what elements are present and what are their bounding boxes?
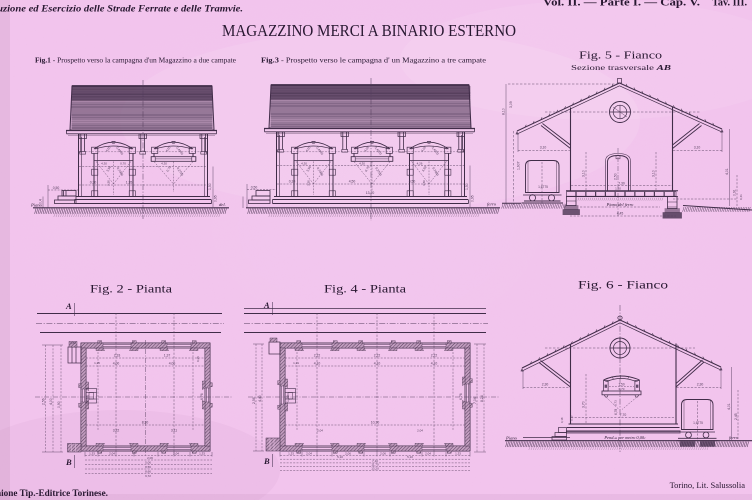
svg-text:0,95: 0,95 xyxy=(471,195,475,202)
svg-text:1,25: 1,25 xyxy=(94,361,100,365)
svg-text:6,76: 6,76 xyxy=(459,393,463,400)
svg-text:7,70: 7,70 xyxy=(620,413,627,417)
svg-text:4,98: 4,98 xyxy=(86,395,90,402)
svg-text:2,04: 2,04 xyxy=(425,452,431,456)
svg-text:4,10: 4,10 xyxy=(314,362,321,366)
svg-text:Fig.3 - Prospetto verso le cam: Fig.3 - Prospetto verso le campagna d' u… xyxy=(261,56,487,65)
svg-text:2,22: 2,22 xyxy=(314,354,321,358)
svg-text:3,10: 3,10 xyxy=(652,170,656,177)
svg-text:0,95: 0,95 xyxy=(214,195,218,202)
svg-text:B: B xyxy=(65,457,72,467)
svg-text:1,6775: 1,6775 xyxy=(538,185,548,189)
svg-text:Piano: Piano xyxy=(505,435,518,440)
svg-text:0,41: 0,41 xyxy=(739,194,743,200)
svg-text:3,70: 3,70 xyxy=(582,401,586,408)
svg-text:0,70: 0,70 xyxy=(619,387,625,391)
svg-text:1,37: 1,37 xyxy=(164,354,171,358)
svg-text:Fig.1 - Prospetto verso la cam: Fig.1 - Prospetto verso la campagna d'un… xyxy=(35,56,237,65)
svg-text:7,30: 7,30 xyxy=(618,182,625,186)
svg-text:4,01: 4,01 xyxy=(727,403,731,410)
svg-text:Piano del ferro: Piano del ferro xyxy=(606,202,634,207)
svg-text:5,10: 5,10 xyxy=(407,455,413,459)
svg-text:1,33: 1,33 xyxy=(288,452,294,456)
svg-text:Vol. II. — Parte I. — Cap. V.: Vol. II. — Parte I. — Cap. V. xyxy=(543,0,701,9)
svg-text:2,30: 2,30 xyxy=(542,383,549,387)
svg-text:3,10: 3,10 xyxy=(540,146,547,150)
svg-text:0,73: 0,73 xyxy=(614,400,618,406)
svg-text:0,30: 0,30 xyxy=(90,181,97,185)
svg-text:4,00: 4,00 xyxy=(169,362,176,366)
svg-text:1,50: 1,50 xyxy=(208,183,212,190)
svg-text:4,00: 4,00 xyxy=(113,362,120,366)
svg-text:0,25: 0,25 xyxy=(196,356,200,362)
svg-text:13,20: 13,20 xyxy=(371,466,379,470)
svg-text:0,18: 0,18 xyxy=(560,417,564,423)
svg-text:8,10: 8,10 xyxy=(502,108,506,115)
svg-text:1,6775: 1,6775 xyxy=(693,421,703,425)
svg-text:truzione ed Esercizio delle St: truzione ed Esercizio delle Strade Ferra… xyxy=(0,4,243,15)
svg-text:3,10: 3,10 xyxy=(694,146,701,150)
svg-text:2,04: 2,04 xyxy=(317,429,323,433)
svg-text:4,10: 4,10 xyxy=(431,362,438,366)
svg-text:13,20: 13,20 xyxy=(366,191,375,195)
svg-text:4,00: 4,00 xyxy=(49,398,53,405)
svg-text:del.: del. xyxy=(219,202,226,207)
svg-text:MAGAZZINO MERCI A BINARIO ESTE: MAGAZZINO MERCI A BINARIO ESTERNO xyxy=(222,21,516,40)
svg-text:1,50: 1,50 xyxy=(465,183,469,190)
svg-text:2,22: 2,22 xyxy=(374,354,381,358)
svg-text:0,15: 0,15 xyxy=(570,415,574,421)
svg-text:3,11: 3,11 xyxy=(171,429,177,433)
svg-text:0,50: 0,50 xyxy=(53,186,60,190)
svg-text:2,50: 2,50 xyxy=(614,173,618,180)
svg-text:4,50: 4,50 xyxy=(409,180,416,184)
svg-text:1,21: 1,21 xyxy=(293,361,299,365)
svg-text:0,80: 0,80 xyxy=(70,341,76,345)
svg-text:2,56: 2,56 xyxy=(252,397,256,404)
svg-text:4,30: 4,30 xyxy=(161,162,167,166)
svg-text:1,08: 1,08 xyxy=(286,395,290,402)
svg-text:10,30: 10,30 xyxy=(371,421,380,425)
svg-text:Fig. 2 - Pianta: Fig. 2 - Pianta xyxy=(90,284,172,296)
svg-text:ferro: ferro xyxy=(729,435,739,440)
svg-text:2,06: 2,06 xyxy=(147,456,153,460)
svg-text:2,06: 2,06 xyxy=(380,452,386,456)
svg-text:nione Tip.-Editrice Torinese.: nione Tip.-Editrice Torinese. xyxy=(0,488,108,498)
svg-text:1,50: 1,50 xyxy=(618,382,624,386)
svg-text:2,30: 2,30 xyxy=(697,383,704,387)
svg-text:Torino, Lit. Salussolia: Torino, Lit. Salussolia xyxy=(670,480,746,490)
svg-text:1,20: 1,20 xyxy=(615,187,621,191)
svg-text:4,26: 4,26 xyxy=(417,162,423,166)
svg-text:3,10: 3,10 xyxy=(582,170,586,177)
svg-text:B: B xyxy=(263,456,270,466)
svg-text:3,22: 3,22 xyxy=(113,429,120,433)
svg-text:7,04: 7,04 xyxy=(473,397,477,404)
svg-text:4,40: 4,40 xyxy=(258,395,262,402)
svg-text:0,50: 0,50 xyxy=(251,186,258,190)
svg-text:Fig. 6 - Fianco: Fig. 6 - Fianco xyxy=(578,280,668,292)
svg-text:3,50: 3,50 xyxy=(422,180,426,186)
svg-text:8,56: 8,56 xyxy=(145,465,151,469)
svg-text:2,33: 2,33 xyxy=(114,354,121,358)
svg-text:1,33: 1,33 xyxy=(199,452,205,456)
svg-text:4,10: 4,10 xyxy=(374,362,381,366)
svg-text:8,30: 8,30 xyxy=(142,421,149,425)
svg-text:0,91: 0,91 xyxy=(733,189,737,196)
svg-text:2,04: 2,04 xyxy=(109,452,115,456)
svg-text:ferro: ferro xyxy=(487,202,497,207)
svg-text:0,70: 0,70 xyxy=(120,162,126,166)
svg-text:6,76: 6,76 xyxy=(200,393,204,400)
svg-text:0,30: 0,30 xyxy=(289,180,296,184)
svg-text:1,33: 1,33 xyxy=(89,452,95,456)
svg-text:2,22: 2,22 xyxy=(431,354,438,358)
svg-text:9,72: 9,72 xyxy=(145,474,151,478)
svg-text:1,607: 1,607 xyxy=(517,161,521,170)
svg-text:2,56: 2,56 xyxy=(42,398,46,405)
svg-text:2,45: 2,45 xyxy=(734,413,738,420)
svg-text:6,78: 6,78 xyxy=(614,409,618,415)
svg-text:Fig. 5 - Fianco: Fig. 5 - Fianco xyxy=(579,50,663,62)
svg-text:5,06: 5,06 xyxy=(145,461,151,465)
svg-text:8,24: 8,24 xyxy=(480,395,484,402)
svg-text:4,30: 4,30 xyxy=(301,162,307,166)
svg-text:1,35: 1,35 xyxy=(126,181,133,185)
svg-text:2,04: 2,04 xyxy=(306,452,312,456)
svg-text:3,50: 3,50 xyxy=(307,180,311,186)
svg-text:4,50: 4,50 xyxy=(349,180,356,184)
svg-text:4,30: 4,30 xyxy=(101,162,107,166)
svg-text:Tav. III.: Tav. III. xyxy=(712,0,747,9)
svg-text:Piano: Piano xyxy=(30,203,43,208)
svg-text:3,09: 3,09 xyxy=(509,101,513,108)
svg-text:8,66: 8,66 xyxy=(145,470,151,474)
svg-text:A: A xyxy=(65,301,72,311)
svg-text:Sezione trasversale AB: Sezione trasversale AB xyxy=(571,63,671,72)
svg-text:4,30: 4,30 xyxy=(359,162,365,166)
svg-text:4,45: 4,45 xyxy=(617,212,624,216)
svg-text:2,04: 2,04 xyxy=(173,452,179,456)
svg-text:1,33: 1,33 xyxy=(455,452,461,456)
svg-text:0,90: 0,90 xyxy=(57,401,61,408)
svg-text:4,01: 4,01 xyxy=(725,168,729,175)
svg-text:2,06: 2,06 xyxy=(345,452,351,456)
svg-text:5,10: 5,10 xyxy=(337,455,343,459)
svg-text:Fig. 4 - Pianta: Fig. 4 - Pianta xyxy=(324,284,406,296)
svg-text:2,04: 2,04 xyxy=(417,429,423,433)
